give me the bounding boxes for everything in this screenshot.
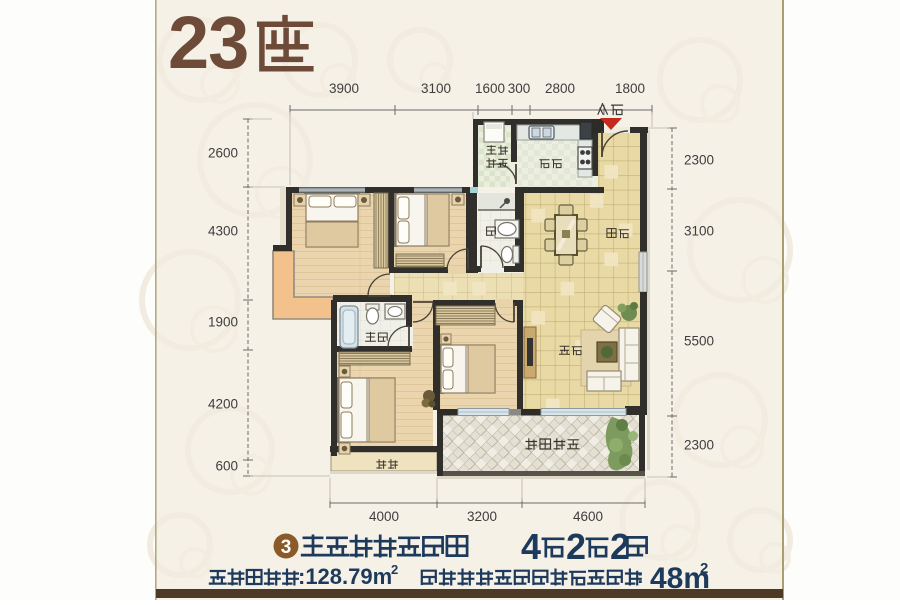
- svg-text:2: 2: [700, 560, 708, 577]
- svg-text:4: 4: [521, 526, 541, 567]
- svg-text:1900: 1900: [208, 315, 238, 330]
- svg-text:4000: 4000: [369, 509, 399, 524]
- svg-text:3900: 3900: [329, 81, 359, 96]
- svg-text:600: 600: [215, 459, 238, 474]
- svg-text::128.79m: :128.79m: [298, 564, 392, 589]
- svg-text:4200: 4200: [208, 397, 238, 412]
- svg-text:3100: 3100: [421, 81, 451, 96]
- svg-text::: :: [637, 566, 644, 588]
- svg-text:4300: 4300: [208, 224, 238, 239]
- svg-text:4600: 4600: [573, 509, 603, 524]
- svg-text:300: 300: [508, 81, 531, 96]
- svg-text:3100: 3100: [684, 224, 714, 239]
- svg-text:2: 2: [566, 526, 586, 567]
- svg-text:1800: 1800: [615, 81, 645, 96]
- svg-text:1600: 1600: [475, 81, 505, 96]
- svg-text:23: 23: [168, 1, 248, 84]
- svg-text:3: 3: [281, 537, 292, 558]
- svg-text:2300: 2300: [684, 153, 714, 168]
- svg-text:3200: 3200: [467, 509, 497, 524]
- svg-text:2300: 2300: [684, 438, 714, 453]
- svg-text:5500: 5500: [684, 334, 714, 349]
- svg-text:2: 2: [391, 562, 398, 577]
- svg-text:2800: 2800: [545, 81, 575, 96]
- svg-text:2600: 2600: [208, 146, 238, 161]
